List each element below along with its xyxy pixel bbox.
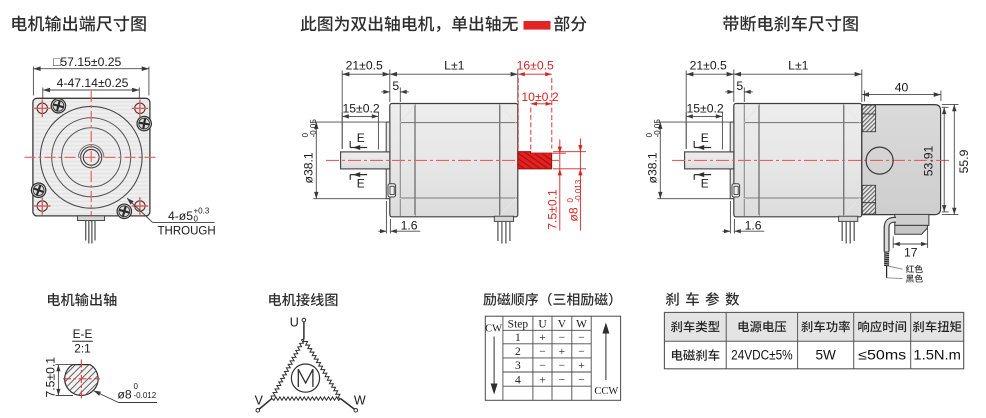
svg-text:4-47.14±0.25: 4-47.14±0.25: [57, 76, 129, 90]
svg-text:−: −: [578, 346, 585, 358]
svg-text:5: 5: [736, 79, 743, 93]
svg-text:-0.012: -0.012: [134, 391, 157, 400]
svg-text:0: 0: [194, 215, 199, 224]
svg-text:E-E: E-E: [73, 327, 93, 341]
svg-text:□57.15±0.25: □57.15±0.25: [53, 55, 121, 69]
svg-text:-0.013: -0.013: [574, 179, 583, 202]
svg-text:CCW: CCW: [594, 386, 618, 397]
svg-text:−: −: [559, 332, 566, 344]
svg-text:1.5N.m: 1.5N.m: [913, 348, 961, 363]
svg-text:U: U: [538, 318, 547, 330]
svg-text:THROUGH: THROUGH: [158, 226, 216, 238]
svg-text:V: V: [255, 393, 264, 407]
svg-text:10±0.2: 10±0.2: [521, 90, 558, 104]
svg-text:U: U: [290, 316, 299, 330]
svg-text:21±0.5: 21±0.5: [346, 59, 383, 73]
svg-text:2:1: 2:1: [74, 342, 90, 356]
svg-text:L±1: L±1: [788, 59, 808, 73]
svg-text:−: −: [539, 360, 546, 372]
svg-text:CW: CW: [485, 324, 502, 335]
svg-text:53.91: 53.91: [922, 146, 936, 177]
svg-text:0: 0: [134, 382, 139, 391]
svg-text:15±0.2: 15±0.2: [687, 102, 724, 116]
svg-text:ø38.1: ø38.1: [645, 152, 659, 183]
svg-text:−: −: [578, 332, 585, 344]
svg-text:Step: Step: [508, 318, 529, 330]
svg-text:E: E: [701, 176, 709, 190]
svg-text:≤50ms: ≤50ms: [858, 348, 906, 363]
svg-text:+: +: [539, 332, 546, 344]
svg-text:W: W: [354, 393, 366, 407]
svg-text:−: −: [559, 360, 566, 372]
svg-text:1: 1: [515, 332, 521, 344]
svg-text:ø8: ø8: [567, 207, 581, 221]
svg-text:16±0.5: 16±0.5: [517, 59, 554, 73]
svg-text:21±0.5: 21±0.5: [690, 59, 727, 73]
svg-text:V: V: [558, 318, 567, 330]
svg-text:7.5±0.1: 7.5±0.1: [546, 189, 560, 230]
svg-text:1.6: 1.6: [401, 218, 418, 232]
svg-text:4: 4: [515, 374, 521, 386]
svg-text:L±1: L±1: [444, 59, 464, 73]
svg-text:ø8: ø8: [117, 388, 131, 402]
svg-text:5W: 5W: [816, 348, 837, 363]
svg-text:24VDC±5%: 24VDC±5%: [731, 348, 793, 363]
svg-text:E: E: [357, 176, 365, 190]
svg-text:40: 40: [895, 80, 909, 94]
svg-text:17: 17: [904, 245, 918, 259]
svg-text:ø38.1: ø38.1: [301, 152, 315, 183]
svg-text:+: +: [539, 374, 546, 386]
svg-text:+: +: [578, 360, 585, 372]
svg-text:5: 5: [392, 79, 399, 93]
svg-text:−: −: [559, 374, 566, 386]
svg-text:W: W: [576, 318, 587, 330]
svg-text:+: +: [559, 346, 566, 358]
svg-text:E: E: [701, 131, 709, 145]
svg-text:4-ø5: 4-ø5: [168, 209, 193, 223]
svg-text:E: E: [357, 131, 365, 145]
svg-text:−: −: [539, 346, 546, 358]
svg-text:3: 3: [515, 360, 521, 372]
svg-text:55.9: 55.9: [957, 149, 971, 173]
svg-text:1.6: 1.6: [745, 218, 762, 232]
svg-text:−: −: [578, 374, 585, 386]
svg-text:7.5±0.1: 7.5±0.1: [44, 357, 58, 398]
svg-text:2: 2: [515, 346, 521, 358]
svg-text:-0.05: -0.05: [309, 119, 318, 138]
svg-text:-0.05: -0.05: [653, 119, 662, 138]
svg-text:15±0.2: 15±0.2: [343, 102, 380, 116]
